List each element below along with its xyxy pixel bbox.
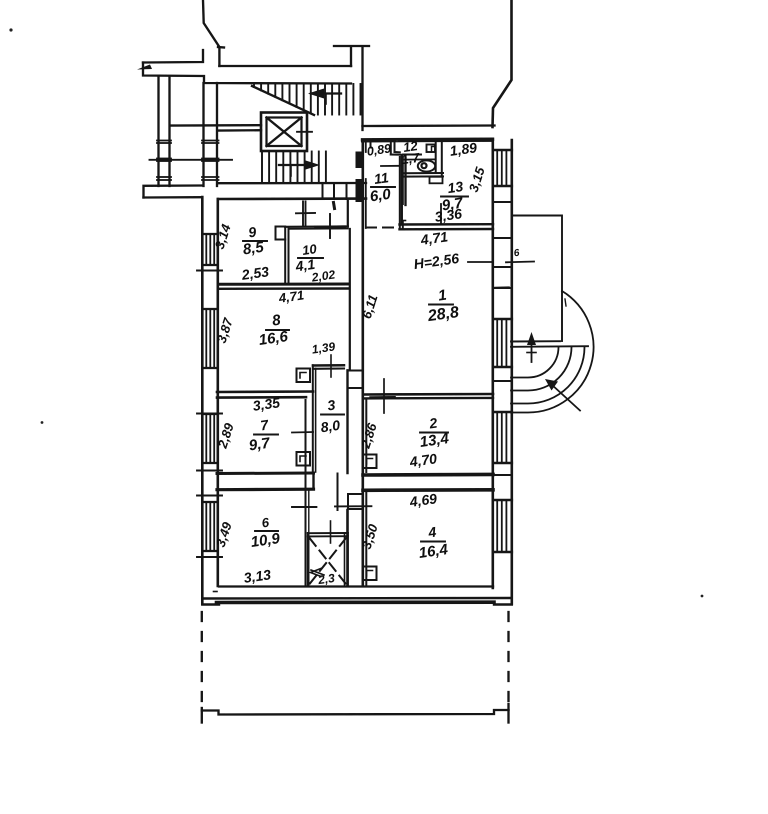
svg-text:8,5: 8,5 (242, 239, 266, 259)
svg-text:8: 8 (271, 311, 282, 329)
svg-text:3,14: 3,14 (212, 222, 234, 251)
svg-text:4: 4 (426, 524, 437, 541)
svg-text:4,71: 4,71 (419, 228, 449, 248)
svg-text:28,8: 28,8 (426, 304, 460, 325)
svg-text:3: 3 (326, 397, 336, 414)
svg-text:13,4: 13,4 (419, 430, 451, 451)
svg-text:10,9: 10,9 (250, 530, 282, 551)
svg-text:1,89: 1,89 (449, 139, 478, 159)
svg-text:16,6: 16,6 (258, 328, 290, 349)
svg-text:0,89: 0,89 (366, 141, 392, 158)
svg-text:3,15: 3,15 (466, 165, 488, 194)
svg-text:16,4: 16,4 (418, 541, 450, 562)
svg-text:H=2,56: H=2,56 (413, 250, 461, 272)
svg-text:1,7: 1,7 (400, 150, 421, 167)
svg-text:13: 13 (446, 178, 464, 196)
svg-text:7: 7 (259, 416, 270, 433)
svg-text:1,39: 1,39 (311, 339, 336, 356)
svg-text:2,3: 2,3 (316, 571, 336, 587)
svg-text:2,86: 2,86 (357, 421, 380, 451)
svg-text:11: 11 (373, 169, 390, 187)
svg-text:9: 9 (247, 224, 257, 241)
svg-text:1: 1 (437, 287, 448, 305)
svg-text:6,0: 6,0 (369, 186, 393, 206)
svg-text:4,70: 4,70 (408, 450, 438, 470)
svg-text:3,35: 3,35 (252, 394, 281, 414)
svg-text:6: 6 (261, 515, 271, 531)
svg-text:2,53: 2,53 (240, 263, 270, 283)
svg-text:8,0: 8,0 (320, 417, 342, 436)
svg-text:4,69: 4,69 (408, 490, 438, 510)
svg-text:3,13: 3,13 (243, 566, 272, 586)
svg-text:4,71: 4,71 (277, 287, 305, 306)
svg-text:3,36: 3,36 (434, 205, 463, 225)
svg-text:2: 2 (427, 415, 438, 432)
svg-text:2,02: 2,02 (310, 267, 336, 284)
svg-text:3,49: 3,49 (213, 520, 235, 549)
svg-text:6: 6 (513, 248, 520, 260)
svg-text:9,7: 9,7 (248, 435, 272, 455)
